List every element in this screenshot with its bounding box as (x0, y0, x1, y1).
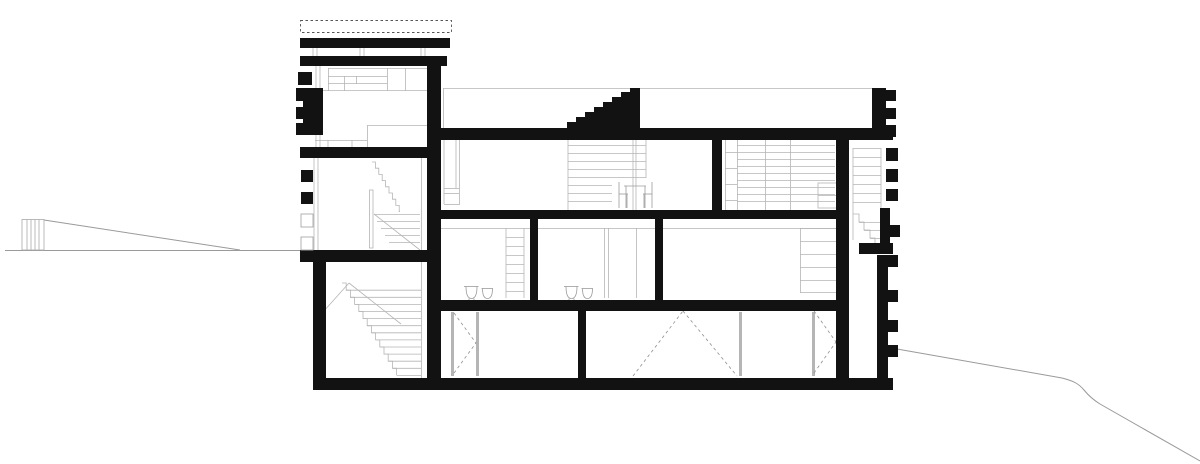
upper-partition-wall (712, 140, 722, 210)
section-canvas (0, 0, 1200, 464)
paper-background (0, 0, 1200, 464)
base-slab (313, 378, 893, 390)
tower-roof-slab-lower (300, 56, 447, 66)
left-basement-wall (313, 262, 326, 382)
main-roof-slab (430, 128, 893, 140)
upper-floor-slab (430, 210, 849, 219)
ground-partition-wall-1 (530, 219, 538, 300)
ground-partition-wall-2 (655, 219, 663, 300)
basement-partition-wall (578, 311, 586, 378)
ground-floor-slab (430, 300, 849, 311)
right-top-wall (872, 88, 896, 137)
stair-landing-slab (859, 243, 893, 254)
tower-mid-slab (300, 147, 427, 158)
tower-entry-slab (300, 250, 441, 262)
architectural-section-drawing (0, 0, 1200, 464)
right-inner-wall (836, 128, 849, 378)
tower-roof-slab-upper (300, 38, 450, 48)
tower-right-wall (427, 56, 441, 390)
right-outer-wall (877, 255, 888, 390)
